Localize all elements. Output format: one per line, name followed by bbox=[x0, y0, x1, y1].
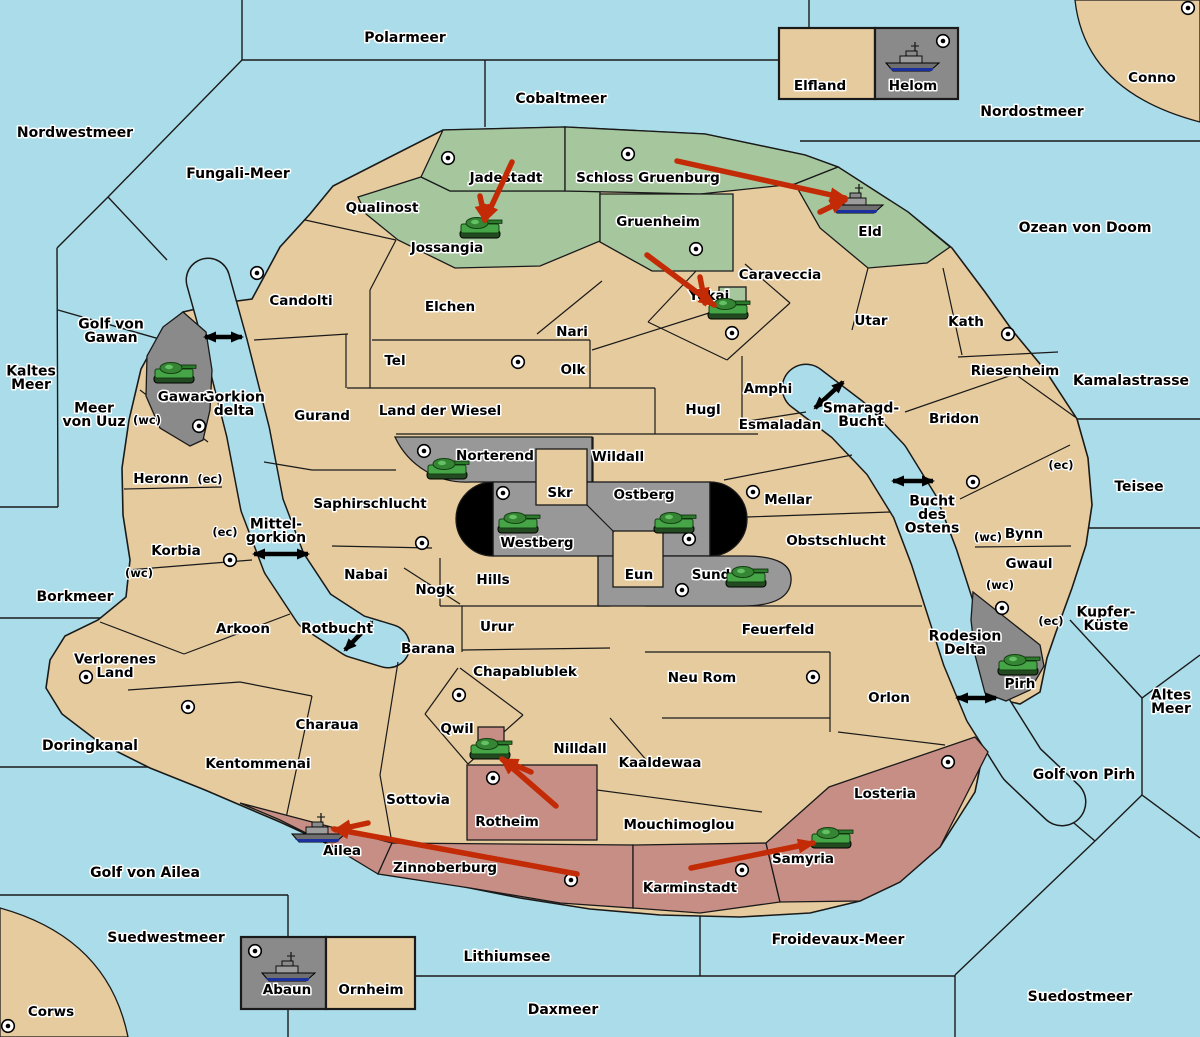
label-region-utar: Utar bbox=[854, 313, 888, 329]
label-region-nilldall: Nilldall bbox=[553, 741, 606, 757]
coast-marker-ec-2: (ec) bbox=[212, 525, 237, 539]
label-region-caraveccia: Caraveccia bbox=[739, 267, 821, 283]
supply-center-saphirschlucht bbox=[416, 537, 429, 550]
label-sea-doringkanal: Doringkanal bbox=[42, 738, 138, 754]
supply-center-rotheim bbox=[487, 772, 500, 785]
supply-center-norterend bbox=[418, 445, 431, 458]
supply-center-conno bbox=[1182, 2, 1195, 15]
supply-center-qwil bbox=[453, 689, 466, 702]
label-sea-cobaltmeer: Cobaltmeer bbox=[515, 91, 606, 107]
label-region-kentommenai: Kentommenai bbox=[205, 756, 310, 772]
supply-center-kentommenai bbox=[182, 701, 195, 714]
supply-center-pirh bbox=[996, 602, 1009, 615]
label-sea-polarmeer: Polarmeer bbox=[364, 30, 446, 46]
label-region-sottovia: Sottovia bbox=[386, 792, 450, 808]
label-region-jossangia: Jossangia bbox=[410, 240, 484, 256]
label-region-gawar: Gawar bbox=[158, 389, 207, 405]
label-sea-ozean-von-doom: Ozean von Doom bbox=[1019, 220, 1152, 236]
label-region-chapablublek: Chapablublek bbox=[473, 664, 578, 680]
label-region-esmaladan: Esmaladan bbox=[739, 417, 822, 433]
label-region-conno: Conno bbox=[1128, 70, 1176, 86]
label-region-korbia: Korbia bbox=[151, 543, 201, 559]
label-region-losteria: Losteria bbox=[854, 786, 916, 802]
label-sea-suedwestmeer: Suedwestmeer bbox=[107, 930, 225, 946]
label-sea-borkmeer: Borkmeer bbox=[37, 589, 114, 605]
label-region-charaua: Charaua bbox=[295, 717, 358, 733]
label-region-eld: Eld bbox=[858, 224, 882, 240]
label-sea-fungali-meer: Fungali-Meer bbox=[186, 166, 290, 182]
coast-marker-ec-7: (ec) bbox=[1038, 614, 1063, 628]
label-region-karminstadt: Karminstadt bbox=[643, 880, 738, 896]
supply-center-korbia bbox=[224, 554, 237, 567]
label-region-pirh: Pirh bbox=[1005, 676, 1036, 692]
label-region-orlon: Orlon bbox=[868, 690, 910, 706]
label-region-zinnoberburg: Zinnoberburg bbox=[393, 860, 497, 876]
label-region-gwaul: Gwaul bbox=[1006, 556, 1053, 572]
label-region-arkoon: Arkoon bbox=[216, 621, 270, 637]
label-region-mellar: Mellar bbox=[764, 492, 812, 508]
label-sea-teisee: Teisee bbox=[1114, 479, 1163, 495]
label-region-ostberg: Ostberg bbox=[613, 487, 674, 503]
label-region-mouchimoglou: Mouchimoglou bbox=[623, 817, 734, 833]
label-sea-froidevaux-meer: Froidevaux-Meer bbox=[772, 932, 905, 948]
label-region-skr: Skr bbox=[547, 485, 573, 501]
label-region-kath: Kath bbox=[948, 314, 984, 330]
supply-center-ostberg bbox=[683, 533, 696, 546]
supply-center-gawar bbox=[193, 420, 206, 433]
label-sea-kaltes-meer: KaltesMeer bbox=[6, 363, 56, 393]
label-region-candolti: Candolti bbox=[269, 293, 332, 309]
label-region-helom: Helom bbox=[889, 78, 937, 94]
label-region-sund: Sund bbox=[692, 567, 731, 583]
label-region-samyria: Samyria bbox=[772, 851, 834, 867]
label-region-rotheim: Rotheim bbox=[475, 814, 539, 830]
strategy-map-canvas: PolarmeerCobaltmeerNordwestmeerFungali-M… bbox=[0, 0, 1200, 1037]
label-region-gruenheim: Gruenheim bbox=[616, 214, 700, 230]
coast-marker-wc-0: (wc) bbox=[133, 413, 161, 427]
label-region-qualinost: Qualinost bbox=[346, 200, 419, 216]
label-region-heronn: Heronn bbox=[133, 471, 189, 487]
label-region-qwil: Qwil bbox=[440, 721, 473, 737]
label-sea-daxmeer: Daxmeer bbox=[528, 1002, 599, 1018]
label-region-obstschlucht: Obstschlucht bbox=[786, 533, 886, 549]
region-ornheim[interactable] bbox=[326, 937, 415, 1009]
supply-center-karminstadt bbox=[736, 864, 749, 877]
label-region-abaun: Abaun bbox=[263, 982, 311, 998]
label-region-kaaldewaa: Kaaldewaa bbox=[619, 755, 702, 771]
label-region-westberg: Westberg bbox=[500, 535, 573, 551]
label-region-tel: Tel bbox=[384, 353, 405, 369]
label-region-land-der-wiesel: Land der Wiesel bbox=[379, 403, 501, 419]
label-region-ornheim: Ornheim bbox=[338, 982, 403, 998]
label-region-riesenheim: Riesenheim bbox=[971, 363, 1059, 379]
supply-center-schloss-gruenburg bbox=[622, 148, 635, 161]
supply-center-jadestadt bbox=[442, 152, 455, 165]
supply-center-abaun bbox=[249, 945, 262, 958]
label-sea-kamalastrasse: Kamalastrasse bbox=[1073, 373, 1189, 389]
label-region-feuerfeld: Feuerfeld bbox=[742, 622, 815, 638]
label-region-saphirschlucht: Saphirschlucht bbox=[313, 496, 427, 512]
label-region-corws: Corws bbox=[28, 1004, 74, 1020]
label-region-olk: Olk bbox=[560, 362, 586, 378]
supply-center-neu-rom bbox=[807, 671, 820, 684]
supply-center-westberg bbox=[497, 487, 510, 500]
label-sea-kupfer-kueste: Kupfer-Küste bbox=[1077, 604, 1136, 634]
supply-center-corws bbox=[2, 1020, 15, 1033]
supply-center-kath bbox=[1002, 328, 1015, 341]
label-sea-mittel-gorkion: Mittel-gorkion bbox=[246, 516, 306, 546]
supply-center-mellar bbox=[747, 486, 760, 499]
label-region-amphi: Amphi bbox=[744, 381, 792, 397]
coast-marker-ec-1: (ec) bbox=[197, 472, 222, 486]
sea-border bbox=[57, 248, 58, 507]
supply-center-bridon bbox=[967, 476, 980, 489]
label-sea-nordwestmeer: Nordwestmeer bbox=[17, 125, 133, 141]
label-region-wildall: Wildall bbox=[592, 449, 644, 465]
supply-center-sund bbox=[676, 584, 689, 597]
coast-marker-wc-3: (wc) bbox=[125, 566, 153, 580]
coast-marker-ec-4: (ec) bbox=[1048, 458, 1073, 472]
label-region-urur: Urur bbox=[480, 619, 514, 635]
label-region-bridon: Bridon bbox=[929, 411, 979, 427]
label-sea-lithiumsee: Lithiumsee bbox=[463, 949, 550, 965]
label-region-nogk: Nogk bbox=[415, 582, 455, 598]
label-region-eun: Eun bbox=[625, 567, 653, 583]
coast-marker-wc-6: (wc) bbox=[986, 578, 1014, 592]
label-region-nari: Nari bbox=[556, 324, 588, 340]
label-region-hills: Hills bbox=[476, 572, 509, 588]
label-region-elchen: Elchen bbox=[425, 299, 475, 315]
label-sea-golf-von-pirh: Golf von Pirh bbox=[1033, 767, 1135, 783]
supply-center-gruenheim bbox=[690, 243, 703, 256]
label-region-hugl: Hugl bbox=[685, 402, 720, 418]
label-sea-altes-meer: AltesMeer bbox=[1151, 687, 1191, 717]
label-region-gurand: Gurand bbox=[294, 408, 350, 424]
label-region-schloss-gruenburg: Schloss Gruenburg bbox=[576, 170, 720, 186]
supply-center-helom bbox=[937, 35, 950, 48]
supply-center-yokai bbox=[726, 327, 739, 340]
supply-center-candolti bbox=[251, 267, 264, 280]
label-sea-rotbucht: Rotbucht bbox=[301, 621, 373, 637]
label-region-barana: Barana bbox=[401, 641, 455, 657]
label-region-neu-rom: Neu Rom bbox=[668, 670, 737, 686]
supply-center-verlorenes-land bbox=[80, 671, 93, 684]
supply-center-losteria bbox=[942, 756, 955, 769]
label-region-ailea: Ailea bbox=[323, 843, 361, 859]
label-sea-suedostmeer: Suedostmeer bbox=[1028, 989, 1133, 1005]
label-region-nabai: Nabai bbox=[344, 567, 388, 583]
label-region-elfland: Elfland bbox=[794, 78, 846, 94]
label-region-bynn: Bynn bbox=[1005, 526, 1043, 542]
coast-marker-wc-5: (wc) bbox=[974, 530, 1002, 544]
label-sea-nordostmeer: Nordostmeer bbox=[980, 104, 1083, 120]
label-sea-golf-von-ailea: Golf von Ailea bbox=[90, 865, 200, 881]
game-map-root: PolarmeerCobaltmeerNordwestmeerFungali-M… bbox=[0, 0, 1200, 1037]
supply-center-tel bbox=[512, 356, 525, 369]
label-sea-golf-von-gawan: Golf vonGawan bbox=[78, 316, 144, 346]
